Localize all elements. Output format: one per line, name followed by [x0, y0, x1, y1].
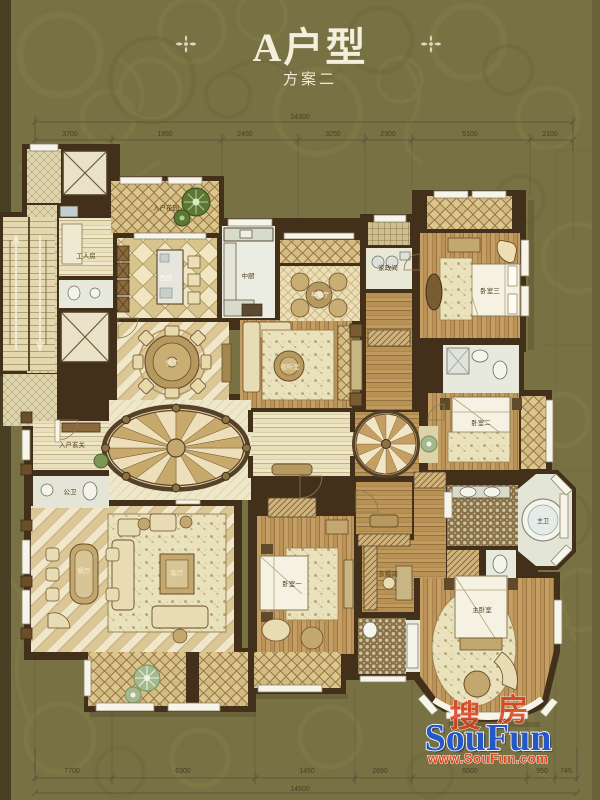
svg-text:7700: 7700 — [64, 768, 80, 775]
svg-text:主卫: 主卫 — [537, 517, 549, 525]
svg-text:6300: 6300 — [175, 768, 191, 775]
svg-text:14500: 14500 — [290, 786, 310, 793]
svg-text:早餐厅: 早餐厅 — [311, 291, 329, 299]
svg-text:公卫: 公卫 — [64, 488, 78, 496]
svg-text:主卧室: 主卧室 — [472, 605, 492, 614]
svg-text:950: 950 — [536, 768, 548, 775]
svg-text:5500: 5500 — [462, 768, 478, 775]
svg-text:3250: 3250 — [325, 131, 341, 138]
svg-text:1450: 1450 — [299, 768, 315, 775]
svg-text:工人房: 工人房 — [76, 251, 96, 260]
svg-text:中厨: 中厨 — [242, 271, 256, 280]
svg-text:2100: 2100 — [542, 131, 558, 138]
svg-text:入户玄关: 入户玄关 — [59, 440, 86, 449]
svg-text:2690: 2690 — [372, 768, 388, 775]
svg-text:卧室二: 卧室二 — [471, 418, 491, 427]
svg-text:西厨: 西厨 — [160, 274, 174, 282]
svg-text:1950: 1950 — [157, 131, 173, 138]
svg-text:视听室: 视听室 — [280, 362, 300, 371]
svg-text:www.SouFun.com: www.SouFun.com — [427, 751, 549, 766]
svg-text:入户花园: 入户花园 — [153, 203, 179, 212]
svg-text:2450: 2450 — [237, 131, 253, 138]
svg-text:餐厅: 餐厅 — [166, 358, 180, 367]
svg-text:745: 745 — [560, 768, 572, 775]
svg-text:家政间: 家政间 — [378, 263, 398, 272]
svg-text:卧室一: 卧室一 — [282, 579, 302, 588]
svg-text:A户型: A户型 — [253, 25, 368, 70]
svg-text:24300: 24300 — [290, 114, 310, 121]
svg-text:3700: 3700 — [62, 131, 78, 138]
svg-text:方案二: 方案二 — [283, 70, 337, 88]
svg-text:2300: 2300 — [380, 131, 396, 138]
svg-text:卧室三: 卧室三 — [480, 286, 500, 295]
svg-text:衣帽间: 衣帽间 — [378, 569, 398, 578]
svg-text:客厅: 客厅 — [171, 568, 185, 577]
svg-text:5100: 5100 — [462, 131, 478, 138]
svg-text:餐厅: 餐厅 — [78, 566, 92, 575]
